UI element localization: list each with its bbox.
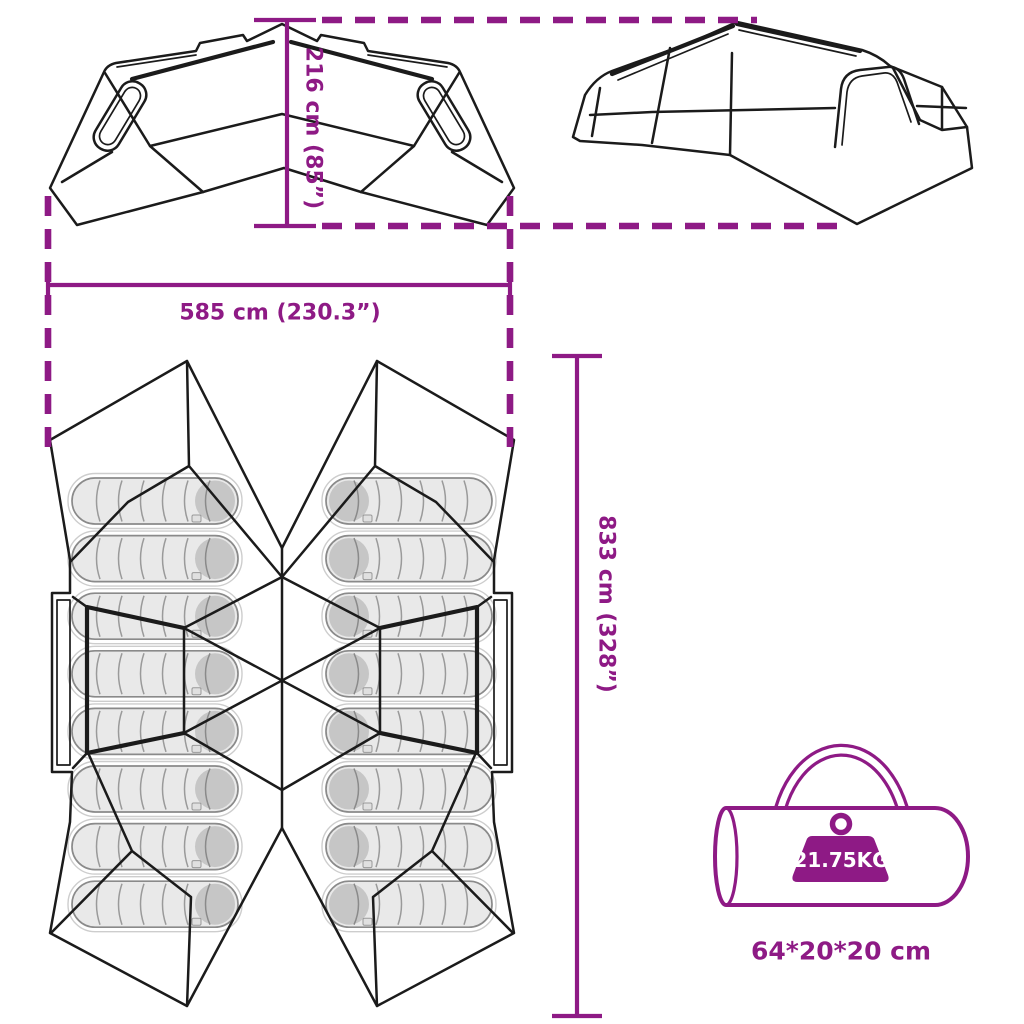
sleeping-bag <box>322 819 496 874</box>
side-flap-left <box>57 600 70 765</box>
sleeping-bag <box>68 531 242 586</box>
sleeping-bag <box>322 589 496 644</box>
product-dimension-diagram: 216 cm (85”) 585 cm (230.3”) 833 cm (328… <box>0 0 1024 1024</box>
sleeping-bag <box>68 589 242 644</box>
depth-dimension-label: 833 cm (328”) <box>594 515 619 693</box>
sleeping-bag <box>68 877 242 932</box>
sleeping-bag <box>322 762 496 817</box>
sleeping-bag <box>68 762 242 817</box>
tent-perspective-view <box>573 22 972 224</box>
tent-side-view <box>50 24 514 225</box>
sleeping-bag <box>68 474 242 529</box>
carry-bag-icon <box>715 750 968 905</box>
side-flap-right <box>494 600 507 765</box>
sleeping-bag <box>322 531 496 586</box>
tent-floor-plan <box>50 361 514 1006</box>
sleeping-bags-left <box>68 474 242 932</box>
width-dimension-label: 585 cm (230.3”) <box>179 301 380 326</box>
packed-size-label: 64*20*20 cm <box>751 937 931 966</box>
perspective-outline <box>573 22 972 224</box>
sleeping-bag <box>68 819 242 874</box>
sleeping-bag <box>322 877 496 932</box>
weight-label: 21.75KG <box>793 848 888 872</box>
height-dimension-label: 216 cm (85”) <box>301 47 326 209</box>
sleeping-bags-right <box>322 474 496 932</box>
sleeping-bag <box>322 646 496 701</box>
sleeping-bag <box>322 474 496 529</box>
sleeping-bag <box>68 646 242 701</box>
side-view-outline <box>50 24 514 225</box>
